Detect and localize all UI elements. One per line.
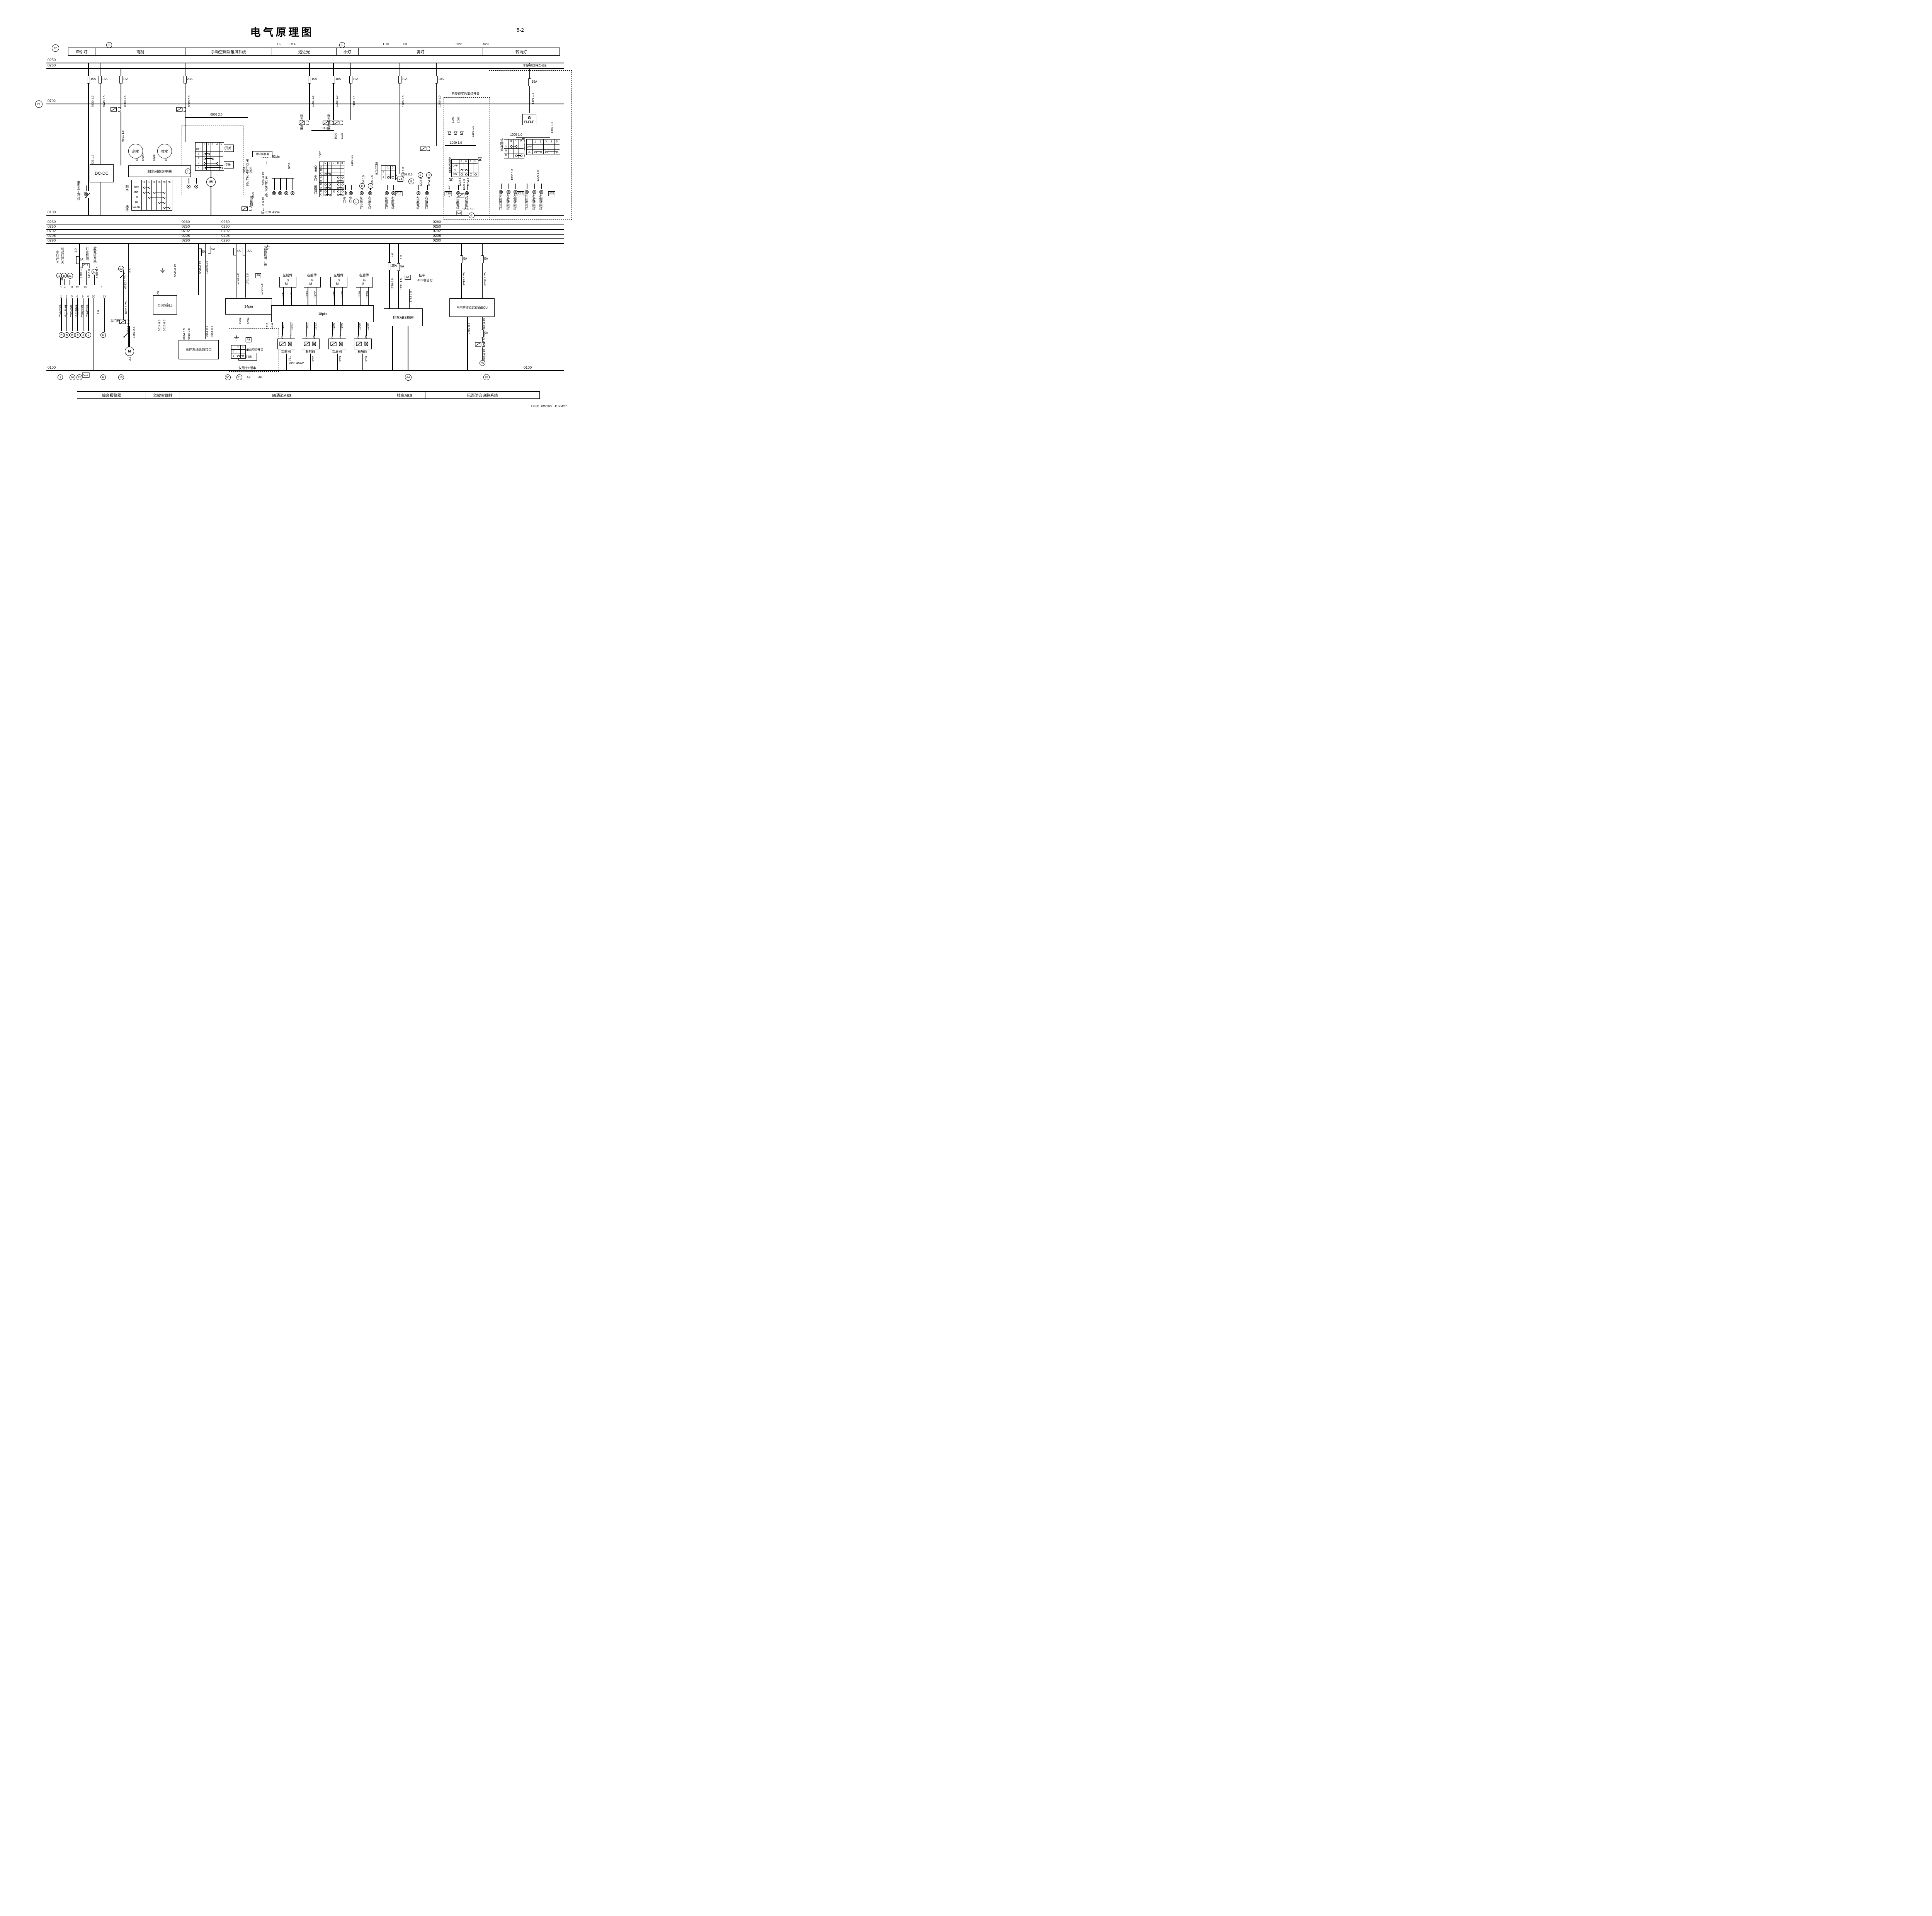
lamp-icon: ⊗ [348,191,354,196]
pin-label: E [313,336,315,339]
contact-bar [149,197,164,197]
pin-label: 12 [76,286,79,289]
switch-table-line [451,163,478,164]
wire-label: 1103 1.0 [471,115,475,148]
lamp-icon: ⊗ [384,191,390,196]
connector-circle-1: 1 [185,168,191,174]
component-label: 左侧转向灯 [513,194,517,210]
switch-table-col: 7 [333,162,335,165]
component-label: 后雾灯开关 [93,247,97,263]
text-label: 仅用于E版本 [238,366,256,370]
switch-table-col: 1 [534,140,536,143]
wire-label: 1305 1.0 [510,158,515,191]
switch-table-col: 17 [148,181,151,184]
connector-C12: C12 [82,263,90,268]
switch-table-line [514,139,514,158]
contact-bar [154,192,164,192]
switch-table-line [141,180,142,210]
fuse-icon-15A [99,76,102,83]
switch-table-col: 19 [158,181,161,184]
connector-circle-1: 1 [339,42,345,48]
fuse-icon-15A [119,76,122,83]
connector-circle-1: 1 [56,273,62,278]
component-label: 制动灯开关 [61,247,64,264]
switch-table-row: L [505,145,507,148]
system-band-bottom-section: 挂车ABS [384,392,425,398]
text-label: 1202 0.5 [400,173,412,176]
component-label: 左后雾灯 [86,305,89,318]
connector-circle-1: 1 [58,374,63,380]
switch-table-line [336,162,336,196]
switch-table-row: 3 [198,162,199,165]
pin-label: 8 [87,296,89,298]
wire-horizontal [185,117,248,118]
bus-0702 [46,234,564,235]
wire-label: 1001 1.5 [311,85,315,117]
wire-vertical [94,298,94,370]
connector-circle-72: 72 [35,100,43,108]
switch-table-row: OFF [196,148,201,151]
component-label: 小灯 [343,196,346,203]
bus-label-0260: 0260 [433,220,441,224]
component-label: 前照灯 [314,185,317,194]
component-label: 小灯 [314,175,317,181]
contact-dot [465,169,468,172]
switch-table-line [549,139,549,154]
wire-vertical [408,325,408,370]
pin-label: 7 [100,286,102,289]
motor-M: M [125,347,134,356]
contact-dot [392,176,394,179]
wire-vertical [100,182,100,215]
component-循环风装置: 循环风装置 [252,151,272,157]
bus-label-0290: 0290 [433,238,441,243]
connector-C10: C10 [395,191,403,196]
switch-table-row: B [320,179,322,182]
component-label: OFF [314,165,317,172]
component-label: 左前雾灯 [384,196,388,209]
connector-circle-72: 72 [52,44,59,52]
connector-circle-K: K [86,332,91,338]
contact-dot [515,155,518,157]
contact-dot [470,174,472,176]
system-band-bottom-section: 综合报警器 [77,392,146,398]
wire-label: 1781 1.5 [399,268,404,300]
component-label: 右后小灯 [368,196,371,209]
component-label: 右后转向灯 [532,194,536,210]
bus-label-0250: 0250 [221,225,230,229]
connector-C10: C10 [445,191,452,196]
wire-label: 0730 1.5 [90,85,95,117]
contact-dot [204,162,206,165]
component-label: 压缩机 [250,196,253,206]
valve-label: 右前阀 [305,349,315,354]
contact-dot [474,174,477,176]
valve-label: 左后阀 [332,349,342,354]
bus-label-0100: 0100 [48,366,56,370]
wire-label: 0740 1.5 [102,85,107,117]
wire-horizontal [311,130,334,131]
fuse-rating: 10A [335,77,341,81]
contact-dot [221,167,223,169]
switch-table-line [543,139,544,154]
wire-label: 1103 1.0 [350,144,354,177]
switch-table-line [215,142,215,170]
pin-label: 6 [77,296,78,298]
wire-label: 0705 1.0 [79,256,83,289]
wire-vertical [509,184,509,189]
wire-vertical [196,178,197,184]
wire-vertical [482,243,483,298]
text-label: ABS 4S4M [289,361,304,365]
component-label: 小灯开关 [56,250,59,264]
lamp-icon: ⊗ [271,191,277,196]
wire-label: 1104 0.5 [361,165,366,197]
wire-vertical [501,184,502,189]
bus-0250 [46,229,564,230]
wheel-speed-sensor: G M [356,277,373,288]
bus-label-0250: 0250 [182,225,190,229]
switch-table-row: B [320,169,322,172]
fuse-rating: 15A [311,77,317,81]
wire-label: 1203 1.0 [418,165,423,197]
contact-dot [545,151,548,153]
switch-table-line [231,354,245,354]
fuse-icon-10A [398,76,401,83]
component-label: 左后小灯 [59,305,62,318]
wire-label: 1601 2.5 [132,316,136,349]
connector-label-C14: C14 [289,42,296,46]
wire-vertical [527,184,527,189]
switch-table-line [459,159,459,176]
text-label: A6 [258,376,262,379]
wire-label: 1003 [287,150,292,182]
fuse-icon-15A [87,76,90,83]
pin-label: E [365,336,367,339]
contact-dot [510,145,513,148]
switch-table-col: 5 [325,162,326,165]
switch-table-line [526,149,560,150]
wire-label: 1700 0.75 [205,251,209,284]
fuse-rating: 5A [237,249,241,253]
wire-vertical [86,185,87,191]
component-label: 洗涤 [125,205,129,211]
pin-label: 20 [92,296,95,298]
system-band-top-section: 转向灯 [483,48,560,55]
fuse-rating: 20A [187,77,192,81]
drawing-code: D530. KW100. H150427 [531,404,567,408]
switch-table-col: 1 [515,140,517,143]
switch-table-col: 18 [153,181,156,184]
page-title: 电气原理图 [250,24,314,39]
switch-table-row: INT [134,191,138,194]
connector-C22: C22 [517,191,524,196]
component-巴西防盗追踪设备ECU: 巴西防盗追踪设备ECU [449,298,495,317]
text-label: 1009 1.0 [450,141,462,145]
switch-table-line [146,180,147,210]
wire-vertical [88,198,89,215]
switch-table-row: C [320,172,322,175]
fuse-rating: 10A [438,77,444,81]
pin-label: A [306,336,308,339]
switch-table-col: 4 [216,143,218,146]
wire-label: 1306 1.0 [536,160,540,192]
switch-table-line [509,139,509,158]
connector-circle-G: G [469,213,474,218]
wire-label: 0801 1.5 [121,120,125,152]
pin-label: 4 [64,286,66,289]
component-label: 右前转向灯 [524,194,528,210]
switch-table-row: 0 [233,350,234,353]
text-label: ABS闪码开关 [245,348,264,352]
bus-label-0702: 0702 [221,229,230,233]
bus-label-0250: 0250 [48,58,56,62]
lamp-icon: ⊗ [185,184,192,190]
system-band-top-section: 远近光 [272,48,337,55]
bus-label-0260: 0260 [182,220,190,224]
connector-circle-13: 13 [118,374,124,380]
connector-circle-D: D [368,183,373,189]
component-label: 压力开关MP端 [264,176,268,197]
wire-vertical [286,185,287,190]
pin-label: 9 [82,296,83,298]
switch-table-col: 1 [237,346,239,349]
switch-table-col: 8 [337,162,339,165]
connector-circle-F: F [75,332,80,338]
pin-label: E [290,336,292,339]
bus-label-0290: 0290 [221,238,230,243]
component-14pin: 14pin [225,298,272,315]
switch-table-row: 1 [233,354,234,357]
wire-label: 4.0 [390,239,395,271]
switch-table-row: OFF [134,186,139,189]
bus-label-0208: 0208 [182,234,190,238]
contact-dot [387,176,389,179]
component-label: 右后雾灯 [425,196,428,209]
system-band-top-section: 牵引灯 [68,48,95,55]
wire-label: 1206 1.0 [437,85,442,117]
fuse-rating: 15A [102,77,107,81]
wire-vertical [274,185,275,190]
wire-label: 0800 1.5 [123,85,128,117]
component-挂车ABS插座: 挂车ABS插座 [384,308,423,326]
lamp-icon: ⊗ [283,191,289,196]
switch-table-col: 2 [520,140,522,143]
switch-table-row: A [320,165,322,168]
component-label: 右后雾灯 [464,196,468,209]
switch-table-line [156,180,157,210]
bus-label-0260: 0260 [48,63,56,68]
switch-table-line [219,142,219,170]
switch-table-line [151,180,152,210]
connector-circle-D: D [64,332,70,338]
pin-label: 3 [66,296,67,298]
pin-label: 13 [103,296,106,298]
wire-label: 0900 2.0 [187,85,192,117]
text-label: A9 [247,376,250,379]
wire-label: 1101 1.0 [352,85,357,117]
switch-table-line [381,175,395,175]
bus-label-0208: 0208 [433,234,441,238]
wire-vertical [351,185,352,190]
switch-table-row: 1 [198,153,199,155]
wire-label: 2.5 [128,254,133,287]
abs-valve [302,339,320,349]
component-OBD接口: OBD接口 [153,295,177,315]
connector-label-C10: C10 [383,42,389,46]
connector-circle-K: K [418,172,423,178]
wire-label: 1603 [126,313,131,345]
switch-table-line [231,349,245,350]
system-band-top-section: 雨刮 [95,48,185,55]
bus-0260 [46,68,564,69]
pin-label: E [340,336,342,339]
switch-table-line [167,180,167,210]
bus-label-0208: 0208 [48,234,56,238]
component-label: 雾灯开关 [375,162,378,175]
bus-label-0100: 0100 [48,210,56,214]
switch-table-row: LO [135,196,138,199]
fuse-icon-15A [243,248,246,255]
switch-table-row: 2 [198,157,199,160]
fuse-icon-20A [184,76,187,83]
switch-table-row: 1 [383,176,384,179]
lamp-icon: ⊗ [193,184,199,190]
wire-label: 1105 0.5 [370,165,374,197]
switch-table-col: 26 [168,181,171,184]
contact-dot [534,151,537,153]
component-电控系统诊断接口: 电控系统诊断接口 [179,340,219,359]
switch-table-col: 5 [474,160,476,163]
switch-table-row: 4 [198,167,199,169]
wire-vertical [515,184,516,189]
connector-circle-16: 16 [70,374,75,380]
switch-table-row: A [320,176,322,179]
switch-table-line [211,142,211,170]
pump-喷水: 喷水 [157,144,172,158]
wire-vertical [392,325,393,370]
fuse-icon-10A [332,76,335,83]
wire-label: 1301 1.5 [531,82,535,115]
bus-label-0250: 0250 [433,225,441,229]
connector-circle-J: J [80,332,86,338]
bus-0208 [46,238,564,239]
switch-table-col: 1 [470,160,471,163]
pin-label: A [281,336,283,339]
component-label: 左后小灯 [359,196,363,209]
component-DC-DC: DC-DC [90,164,114,182]
switch-table-col: 6 [329,162,330,165]
component-label: 压力开关HP&LP端 [245,159,249,186]
switch-table-line [202,142,202,170]
text-label: 自复位式后雾灯开关 [452,92,480,96]
wire-vertical [461,243,462,298]
contact-dot [520,155,523,157]
bus-0290 [46,243,564,244]
switch-table-row: 0 [454,168,456,171]
wire-label: 1416 0.5 [87,256,92,289]
switch-table-row: C [320,183,322,185]
wire-label: 0049 0.75 [198,251,203,284]
connector-label-C9: C9 [277,42,282,46]
text-label: 0905 2.0 [210,113,222,116]
switch-table-col: 3 [545,140,547,143]
wire-vertical [398,243,399,308]
component-label: 右侧转向灯 [539,194,543,210]
switch-table-row: A [320,186,322,189]
switch-table-line [386,165,386,179]
wire-label: 1701 2.5 [245,263,250,295]
connector-circle-13: 13 [118,266,124,272]
wire-vertical [333,63,334,120]
bus-label-0290: 0290 [182,238,190,243]
component-18pin: 18pin [271,305,374,322]
wire-vertical [94,275,95,285]
contact-dot [515,145,518,148]
contact-dot [465,174,468,176]
wire-vertical [345,185,346,190]
wire-vertical [189,178,189,184]
switch-table-col: 3 [212,143,214,146]
wire-label: 3712 0.75 [462,263,467,295]
switch-table-line [451,172,478,172]
motor-M: M [206,177,216,187]
switch-table-row: M [505,150,507,152]
contact-dot [242,355,244,357]
pin-label: A [332,336,333,339]
wire-vertical [309,63,310,120]
schematic-canvas: 电气原理图 5-2 D530. KW100. H150427 025002600… [0,0,597,422]
connector-label-C3: C3 [403,42,407,46]
fuse-icon-10A [349,76,352,83]
contact-dot [204,158,206,160]
system-band-top-section: 手动空调及暖风系统 [185,48,272,55]
wire-vertical [393,185,394,190]
switch-table-col: 5 [392,167,393,169]
switch-table-row: OFF [527,145,532,148]
switch-table-row: B [320,190,322,192]
fuse-rating: 15A [246,249,252,253]
contact-bar [204,167,221,168]
wire-vertical [389,243,390,308]
switch-table-line [554,139,554,154]
switch-table-line [468,159,469,176]
component-label: 灯丝检测 [85,247,89,260]
system-band-top-section: 雾灯 [359,48,483,55]
connector-circle-C: C [359,183,365,189]
connector-A4: A4 [405,275,411,280]
bus-label-0208: 0208 [221,234,230,238]
pin-label: A [357,336,359,339]
text-label: 不配昼间行车灯时 [523,64,548,68]
wire-label: 1005 1.0 [335,85,339,117]
connector-label-C22: C22 [456,42,462,46]
connector-A6: A6 [255,273,261,278]
wire-vertical [121,68,121,109]
switch-table-row: HI [135,201,138,204]
component-label: 左后雾灯 [416,196,420,209]
fuse-rating: 10A [353,77,358,81]
switch-table-col: 5 [556,140,558,143]
component-label: 牵引车工作灯 [77,181,80,200]
component-label: 左后转向灯 [506,194,510,210]
contact-dot [461,174,463,176]
pin-label: 2 [60,296,62,298]
connector-A29: A29 [548,191,555,196]
component-label: 右后小灯 [64,305,68,318]
component-label: 左后雾灯 [456,196,459,209]
fuse-rating: 5A [484,257,488,260]
